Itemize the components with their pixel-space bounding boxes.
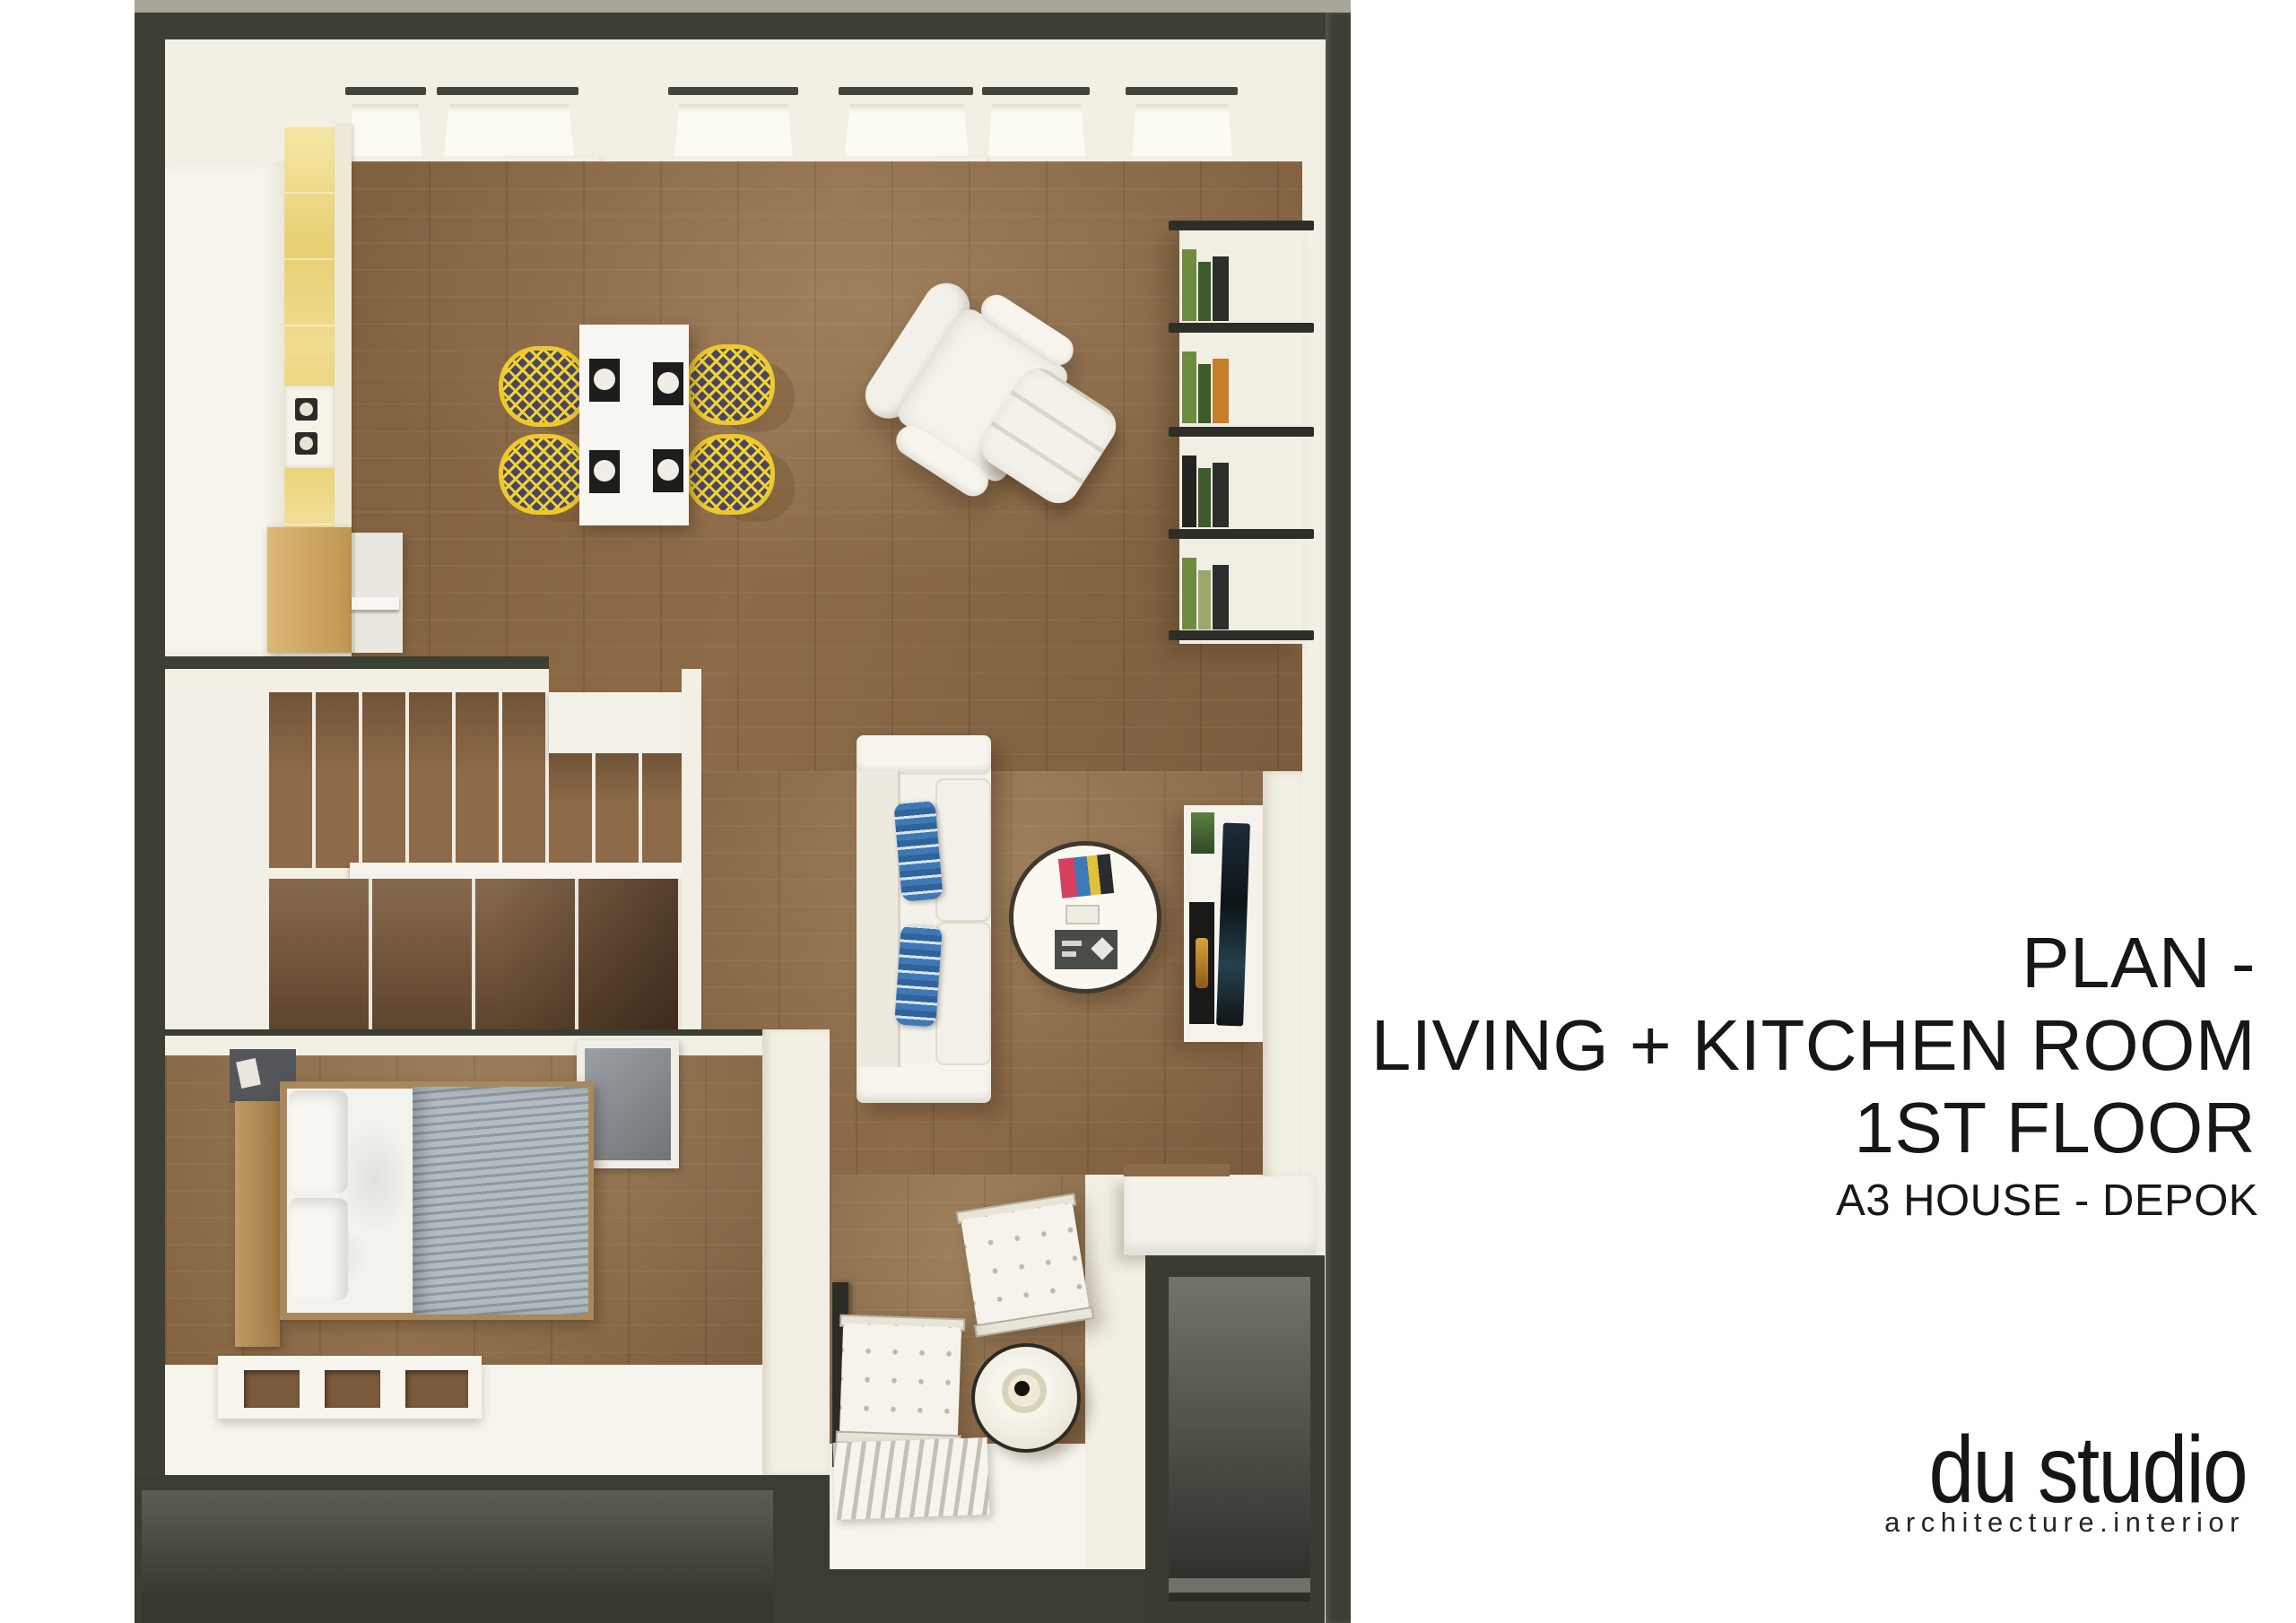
window-sill [350, 104, 422, 156]
stove-burner [295, 432, 317, 455]
window-slot [437, 87, 578, 95]
sofa-cushion [935, 778, 991, 922]
sofa-pillow-blue [893, 800, 943, 902]
stair-east-wall [682, 669, 701, 1029]
window-slot [982, 87, 1090, 95]
bed-foot-rack [218, 1356, 482, 1419]
coaster-box [1065, 905, 1100, 924]
book-gray [1055, 930, 1118, 969]
bookshelf-items [1182, 337, 1232, 423]
dining-chair-yellow [499, 434, 588, 515]
bed-pillow [289, 1090, 348, 1193]
bed-duvet-striped [413, 1087, 588, 1315]
title-line-3: 1ST FLOOR [1359, 1087, 2256, 1169]
dining-table [579, 325, 689, 525]
window-sill [444, 104, 574, 156]
striped-doormat [833, 1437, 990, 1520]
stair-upper-flight [269, 692, 549, 868]
shelf-divider [1169, 221, 1314, 230]
project-subtitle: A3 HOUSE - DEPOK [1541, 1176, 2258, 1225]
shelf-divider [1169, 323, 1314, 333]
bedroom-north-wall-edge [165, 1029, 830, 1036]
placemat [653, 362, 683, 405]
dining-chair-yellow [685, 344, 775, 425]
placemat [589, 450, 620, 493]
shelf-divider [1169, 427, 1314, 437]
tufted-stool [960, 1193, 1091, 1337]
entry-bench [1124, 1176, 1316, 1255]
window-sill [1132, 104, 1232, 156]
shelf-divider [1169, 529, 1314, 539]
title-line-1: PLAN - [1359, 922, 2256, 1004]
studio-logo: du studio [1707, 1422, 2247, 1517]
title-block: PLAN - LIVING + KITCHEN ROOM 1ST FLOOR [1359, 922, 2256, 1169]
lamp-finial [1014, 1381, 1030, 1396]
bookshelf-items [1182, 235, 1232, 321]
wall-east [1326, 13, 1351, 1623]
dining-chair-yellow [499, 346, 588, 427]
sofa-cushion [935, 922, 991, 1065]
sofa-pillow-blue [894, 924, 943, 1028]
terrace-glass-panel [1169, 1277, 1310, 1601]
terrace-step [1169, 1578, 1310, 1593]
dining-chair-yellow [685, 434, 775, 515]
bed-pillow [289, 1198, 348, 1300]
window-sill [988, 104, 1085, 156]
sofa-armrest [857, 735, 991, 775]
stove-burner [295, 398, 317, 421]
tufted-stool [839, 1315, 962, 1448]
round-lamp-table [971, 1343, 1081, 1453]
console-books [1191, 812, 1214, 854]
kitchen-appliance [352, 533, 403, 653]
bookshelf-items [1182, 543, 1232, 629]
console-bottle-shelf [1189, 902, 1214, 1024]
window-slot [345, 87, 426, 95]
window-slot [668, 87, 798, 95]
wall-west [135, 13, 165, 1623]
window-slot [839, 87, 973, 95]
studio-logo-tagline: architecture.interior [1617, 1508, 2245, 1536]
bookshelf-items [1182, 441, 1232, 527]
wall-north [135, 13, 1351, 39]
tv-console [1184, 805, 1263, 1042]
placemat [653, 449, 683, 492]
double-bed [280, 1081, 594, 1320]
bottle [1196, 938, 1208, 988]
placemat [589, 359, 620, 402]
bedroom-east-wall [762, 1029, 830, 1475]
title-line-2: LIVING + KITCHEN ROOM [1359, 1004, 2256, 1087]
sofa [857, 735, 991, 1103]
stair-landing [165, 692, 269, 1029]
presentation-board: PLAN - LIVING + KITCHEN ROOM 1ST FLOOR A… [0, 0, 2296, 1623]
window-sill [674, 104, 793, 156]
outer-wall-top-edge [135, 0, 1351, 13]
magazine-stack [1058, 854, 1114, 898]
window-slot [1126, 87, 1238, 95]
stair-wall-top [165, 669, 549, 692]
sofa-armrest [857, 1063, 991, 1103]
stair-balustrade [549, 692, 701, 757]
stair-kitchen-wall [135, 656, 549, 669]
coffee-table [1009, 841, 1161, 994]
window-sill [845, 104, 969, 156]
tv-screen [1216, 823, 1250, 1027]
kitchen-island-counter [267, 527, 352, 653]
exterior-south-wall [830, 1569, 1145, 1623]
exterior-south-west-panel [142, 1490, 773, 1623]
appliance-handle [352, 597, 399, 610]
wall-east-niche [1263, 771, 1302, 1194]
stair-upper-flight [549, 753, 682, 868]
stair-handrail [350, 863, 682, 879]
shelf-divider [1169, 630, 1314, 640]
stair-lower-flight [269, 879, 682, 1029]
bed-headboard [235, 1101, 280, 1347]
